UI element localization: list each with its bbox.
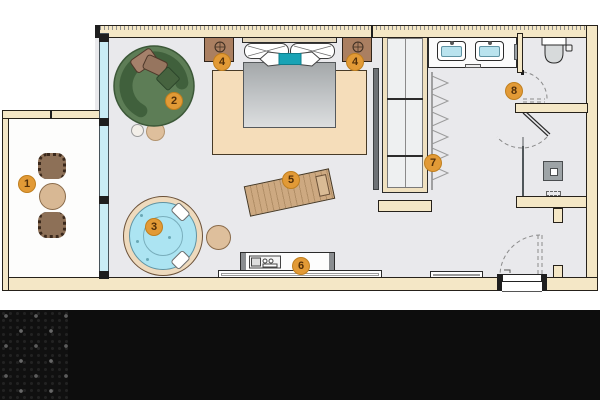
plan-marker-4a: 4 bbox=[213, 53, 231, 71]
marker-number: 3 bbox=[151, 221, 157, 233]
lamp-icon bbox=[214, 41, 226, 53]
teal-accent-pillow bbox=[279, 54, 301, 65]
toilet-flush bbox=[566, 45, 572, 51]
marker-number: 7 bbox=[430, 157, 436, 169]
toilet-door-swing bbox=[521, 70, 549, 106]
faucet-icon bbox=[488, 41, 492, 45]
door-leaf bbox=[523, 111, 550, 136]
marker-number: 5 bbox=[288, 174, 294, 186]
coffee-tray-icon bbox=[249, 255, 281, 269]
wall-nib-entry bbox=[553, 265, 563, 278]
entry-door-swing bbox=[498, 232, 545, 278]
sink-right bbox=[475, 41, 504, 61]
toilet-shower-divider-wall bbox=[515, 103, 588, 113]
door-arc bbox=[523, 72, 547, 100]
marker-number: 2 bbox=[171, 95, 177, 107]
plan-marker-1: 1 bbox=[18, 175, 36, 193]
closet-shelf-divider bbox=[387, 155, 423, 157]
marker-number: 4 bbox=[219, 56, 225, 68]
plan-marker-8: 8 bbox=[505, 82, 523, 100]
floor-plan: 1 2 3 4 4 5 6 7 8 bbox=[0, 0, 600, 310]
lamp-icon bbox=[352, 41, 364, 53]
window-mullion bbox=[99, 118, 109, 126]
closet-shelf-divider bbox=[387, 98, 423, 100]
jacuzzi-jet bbox=[136, 240, 139, 243]
entry-bench-line bbox=[433, 274, 480, 276]
media-console bbox=[240, 252, 335, 271]
vanity-drawer-pull bbox=[465, 64, 481, 68]
terrace-wall-joint bbox=[50, 110, 52, 119]
sink-basin bbox=[479, 46, 500, 57]
plan-marker-7: 7 bbox=[424, 154, 442, 172]
closet-rod bbox=[405, 39, 406, 187]
marker-number: 4 bbox=[352, 56, 358, 68]
corner-post bbox=[95, 25, 100, 38]
terrace-table bbox=[39, 183, 66, 210]
plan-marker-4b: 4 bbox=[346, 53, 364, 71]
marker-number: 8 bbox=[511, 85, 517, 97]
door-arc bbox=[500, 235, 540, 275]
jacuzzi-side-table bbox=[206, 225, 231, 250]
closet-bottom-wall bbox=[378, 200, 432, 212]
jacuzzi-jet bbox=[146, 258, 149, 261]
toilet-bowl bbox=[545, 45, 563, 63]
plan-marker-6: 6 bbox=[292, 257, 310, 275]
shower-bottom-wall bbox=[516, 196, 587, 208]
faucet-icon bbox=[450, 41, 454, 45]
window-mullion bbox=[99, 271, 109, 279]
toilet-room-wall bbox=[517, 33, 523, 73]
closet-shelving bbox=[382, 33, 428, 193]
plan-marker-5: 5 bbox=[282, 171, 300, 189]
jacuzzi-jet bbox=[168, 236, 171, 239]
closet-hanging-rail bbox=[429, 72, 451, 190]
closet-sliding-door bbox=[373, 68, 379, 190]
screenshot: 1 2 3 4 4 5 6 7 8 SEDUCTIVE TROPICAL-VIE… bbox=[0, 0, 600, 400]
console-side bbox=[241, 253, 246, 270]
toilet-tank bbox=[542, 37, 566, 45]
console-side bbox=[329, 253, 334, 270]
footer-bar: SEDUCTIVE TROPICAL-VIEW JACUZZI SUITE 1 … bbox=[0, 310, 600, 400]
terrace-left-wall bbox=[2, 110, 9, 291]
sitting-area bbox=[110, 41, 198, 135]
right-wall bbox=[586, 25, 598, 291]
divan-pad bbox=[315, 174, 330, 197]
marker-number: 6 bbox=[298, 260, 304, 272]
jacuzzi-jet bbox=[140, 214, 143, 217]
sink-left bbox=[437, 41, 466, 61]
plan-marker-2: 2 bbox=[165, 92, 183, 110]
window-mullion bbox=[99, 34, 109, 42]
marker-number: 1 bbox=[24, 178, 30, 190]
door-arc bbox=[497, 137, 547, 148]
shower-pivot-door bbox=[492, 110, 560, 160]
toilet bbox=[539, 36, 573, 69]
wall-nib-shower bbox=[553, 208, 563, 223]
window-mullion bbox=[99, 196, 109, 204]
shower-head-center bbox=[550, 168, 558, 176]
door-leaf-dashed bbox=[523, 99, 545, 102]
terrace-window-wall bbox=[99, 33, 109, 278]
deco-pillows bbox=[258, 50, 322, 68]
shower-head bbox=[543, 161, 563, 181]
door-leaf-dashed bbox=[538, 235, 542, 275]
bed-mattress bbox=[243, 62, 336, 128]
wall-joint bbox=[371, 25, 373, 38]
terrace-chair-top bbox=[38, 153, 66, 179]
footer-dot-pattern bbox=[0, 310, 68, 400]
plan-marker-3: 3 bbox=[145, 218, 163, 236]
terrace-chair-bottom bbox=[38, 212, 66, 238]
wall-hatch bbox=[96, 26, 595, 30]
door-handle-mark bbox=[504, 270, 510, 273]
sink-basin bbox=[441, 46, 462, 57]
